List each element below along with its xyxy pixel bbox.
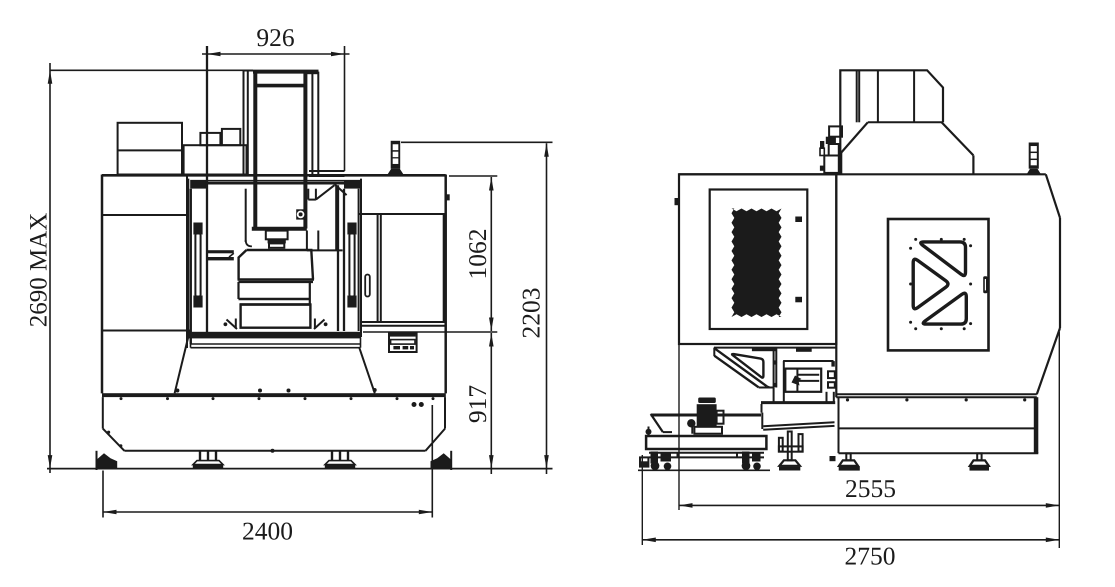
svg-text:2400: 2400 [242,517,293,546]
svg-text:2203: 2203 [517,288,546,339]
svg-text:2750: 2750 [845,542,896,571]
svg-text:2555: 2555 [845,474,896,503]
svg-text:917: 917 [463,385,492,424]
svg-text:926: 926 [256,23,294,52]
svg-text:2690 MAX: 2690 MAX [26,213,53,328]
svg-text:1062: 1062 [463,229,492,280]
